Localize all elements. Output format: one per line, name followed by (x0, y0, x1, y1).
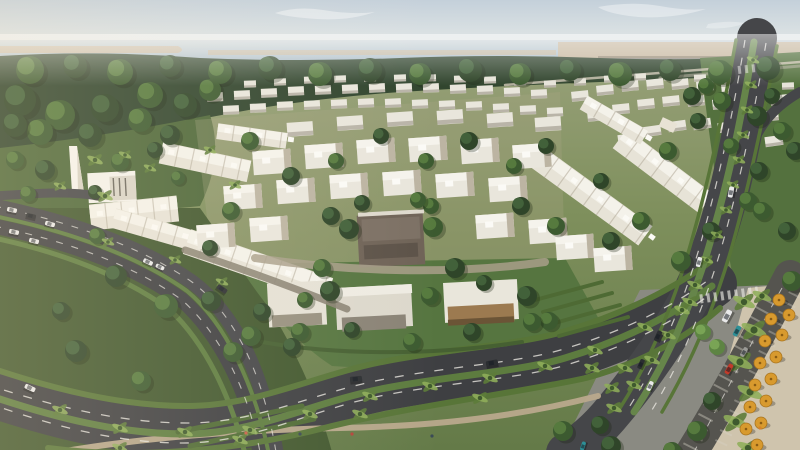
screenshot-root (0, 0, 800, 450)
sunlight-overlay (0, 0, 800, 450)
aerial-masterplan-render (0, 0, 800, 450)
